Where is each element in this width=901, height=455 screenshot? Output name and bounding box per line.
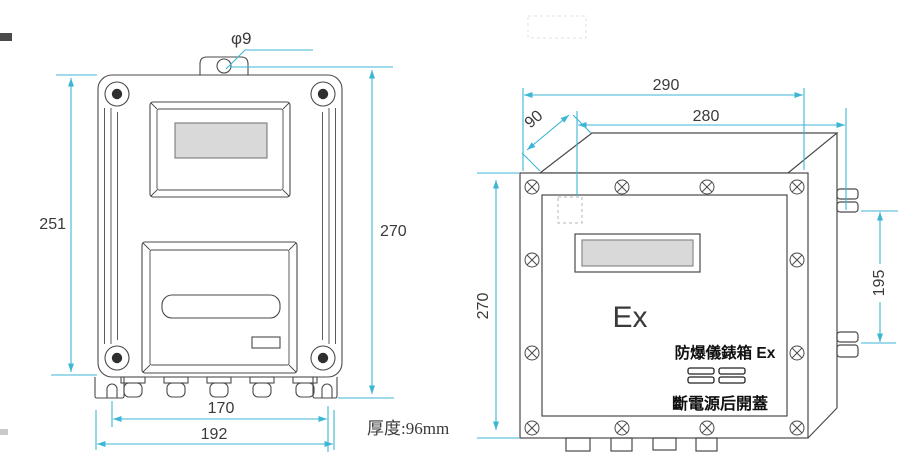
right-view xyxy=(520,16,858,451)
scan-artifact xyxy=(0,429,8,435)
foot-slot xyxy=(322,384,332,398)
ex-marking: Ex xyxy=(612,301,647,334)
hidden-feature-top xyxy=(528,16,586,38)
bottom-stubs xyxy=(566,438,717,451)
mounting-feet xyxy=(95,377,337,398)
cable-stub xyxy=(566,438,590,451)
cable-gland xyxy=(164,377,188,397)
scan-artifact xyxy=(0,33,12,41)
display-window xyxy=(575,234,700,272)
bracket-tab xyxy=(837,345,858,357)
bracket-tab xyxy=(837,202,858,212)
enclosure-body xyxy=(98,75,342,377)
mounting-foot xyxy=(95,377,124,398)
dim-290-label: 290 xyxy=(653,77,680,94)
cable-gland xyxy=(207,377,231,397)
cable-stub xyxy=(653,438,676,450)
dim-hole-label: φ9 xyxy=(231,29,251,48)
left-view xyxy=(95,57,342,398)
dim-270-right-label: 270 xyxy=(475,293,492,320)
lcd-screen xyxy=(582,240,693,266)
lcd-screen xyxy=(175,123,267,158)
dim-192-label: 192 xyxy=(201,426,228,443)
nameplate-line2: 斷電源后開蓋 xyxy=(672,394,768,413)
cable-gland xyxy=(250,377,274,397)
door-panel xyxy=(542,195,787,416)
drawing-svg: 251 φ9 270 170 192 厚度:96mm xyxy=(0,0,901,455)
dimension-drawing: 251 φ9 270 170 192 厚度:96mm xyxy=(0,0,901,455)
cable-gland xyxy=(121,377,145,397)
side-bottom-edge xyxy=(808,408,837,438)
cable-stub xyxy=(696,438,717,451)
dim-90-label: 90 xyxy=(522,107,547,132)
top-face xyxy=(540,133,837,173)
cable-glands xyxy=(121,377,317,397)
thickness-note: 厚度:96mm xyxy=(367,419,449,438)
cable-stub xyxy=(611,438,632,451)
dim-251-label: 251 xyxy=(39,216,66,233)
dim-270-label: 270 xyxy=(380,223,407,240)
bracket-tab xyxy=(837,332,858,342)
dim-195-label: 195 xyxy=(871,270,888,297)
foot-slot xyxy=(107,384,117,398)
nameplate-line1: 防爆儀錶箱 Ex xyxy=(675,343,776,362)
dim-170-label: 170 xyxy=(208,400,235,417)
dim-280-label: 280 xyxy=(693,108,720,125)
side-brackets xyxy=(837,189,858,357)
bracket-tab xyxy=(837,189,858,199)
